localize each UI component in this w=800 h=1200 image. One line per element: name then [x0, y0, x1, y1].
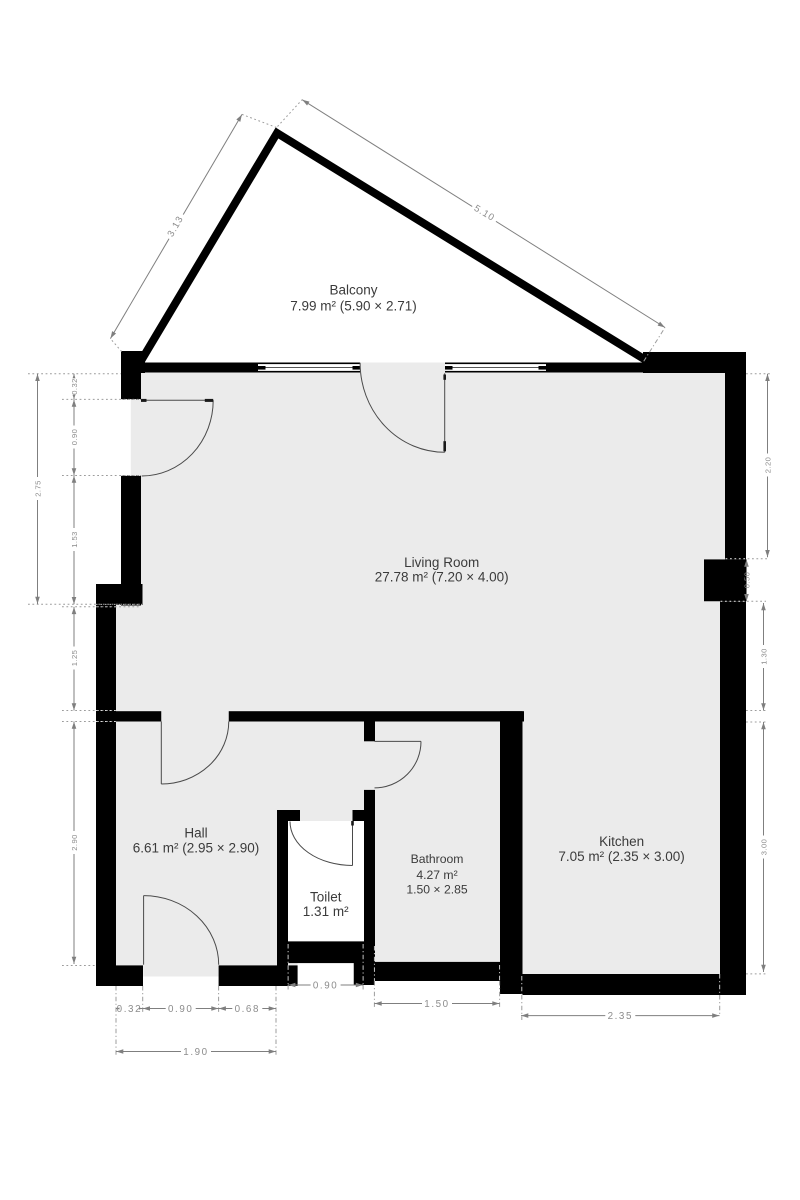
svg-text:1.53: 1.53: [70, 531, 79, 547]
svg-text:1.25: 1.25: [70, 650, 79, 666]
svg-text:27.78 m² (7.20 × 4.00): 27.78 m² (7.20 × 4.00): [375, 569, 509, 584]
svg-text:Hall: Hall: [184, 826, 207, 841]
svg-text:1.30: 1.30: [759, 648, 768, 664]
svg-text:0.32: 0.32: [117, 1004, 142, 1015]
svg-text:0.50: 0.50: [742, 572, 751, 588]
svg-text:0.90: 0.90: [70, 429, 79, 445]
svg-text:1.31 m²: 1.31 m²: [303, 904, 349, 919]
svg-text:Living Room: Living Room: [404, 555, 479, 570]
svg-text:2.35: 2.35: [608, 1011, 633, 1022]
svg-text:Toilet: Toilet: [310, 889, 342, 904]
svg-text:7.05 m² (2.35 × 3.00): 7.05 m² (2.35 × 3.00): [558, 849, 684, 864]
svg-text:4.27 m²: 4.27 m²: [416, 868, 457, 882]
svg-text:3.00: 3.00: [759, 839, 768, 855]
svg-text:0.90: 0.90: [168, 1004, 193, 1015]
svg-text:2.90: 2.90: [70, 834, 79, 850]
svg-text:0.32: 0.32: [70, 378, 79, 394]
svg-text:2.20: 2.20: [763, 457, 772, 473]
svg-text:1.90: 1.90: [183, 1047, 208, 1058]
svg-text:Kitchen: Kitchen: [599, 834, 644, 849]
svg-text:Bathroom: Bathroom: [411, 852, 464, 866]
svg-text:0.90: 0.90: [313, 981, 338, 992]
svg-text:1.50: 1.50: [424, 999, 449, 1010]
svg-text:2.75: 2.75: [33, 480, 42, 496]
svg-text:6.61 m² (2.95 × 2.90): 6.61 m² (2.95 × 2.90): [133, 841, 259, 856]
svg-text:Balcony: Balcony: [329, 283, 377, 298]
svg-text:7.99 m² (5.90 × 2.71): 7.99 m² (5.90 × 2.71): [290, 298, 416, 313]
svg-text:1.50 × 2.85: 1.50 × 2.85: [406, 883, 468, 897]
svg-text:0.68: 0.68: [235, 1004, 260, 1015]
